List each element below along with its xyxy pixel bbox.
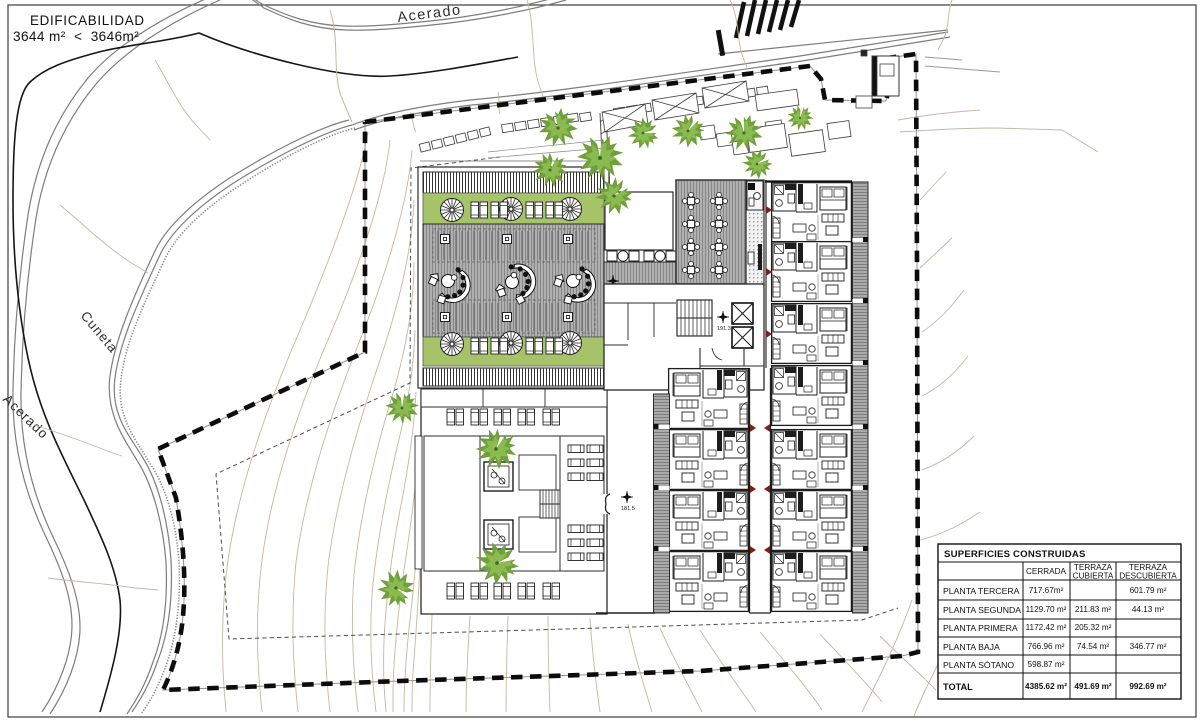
svg-text:3644 m² < 3646m²: 3644 m² < 3646m² bbox=[13, 29, 139, 44]
svg-text:1172.42 m²: 1172.42 m² bbox=[1026, 623, 1067, 632]
svg-text:205.32 m²: 205.32 m² bbox=[1075, 623, 1112, 632]
svg-text:346.77 m²: 346.77 m² bbox=[1130, 642, 1167, 651]
svg-text:PLANTA PRIMERA: PLANTA PRIMERA bbox=[943, 623, 1018, 633]
svg-text:PLANTA SEGUNDA: PLANTA SEGUNDA bbox=[943, 605, 1021, 615]
svg-text:DESCUBIERTA: DESCUBIERTA bbox=[1119, 572, 1177, 581]
svg-text:TOTAL: TOTAL bbox=[943, 682, 973, 692]
svg-text:598.87 m²: 598.87 m² bbox=[1028, 660, 1065, 669]
svg-text:717.67m²: 717.67m² bbox=[1029, 586, 1064, 595]
svg-text:74.54 m²: 74.54 m² bbox=[1077, 642, 1110, 651]
svg-text:992.69 m²: 992.69 m² bbox=[1129, 682, 1167, 691]
svg-text:766.96 m²: 766.96 m² bbox=[1028, 642, 1065, 651]
svg-text:CERRADA: CERRADA bbox=[1026, 567, 1067, 576]
svg-text:211.83 m²: 211.83 m² bbox=[1075, 605, 1112, 614]
svg-text:CUBIERTA: CUBIERTA bbox=[1073, 572, 1114, 581]
svg-text:4385.62 m²: 4385.62 m² bbox=[1025, 682, 1067, 691]
svg-text:491.69 m²: 491.69 m² bbox=[1074, 682, 1112, 691]
svg-text:EDIFICABILIDAD: EDIFICABILIDAD bbox=[30, 13, 145, 28]
svg-text:PLANTA BAJA: PLANTA BAJA bbox=[943, 642, 1000, 652]
svg-text:191.3: 191.3 bbox=[717, 326, 731, 332]
svg-text:601.79 m²: 601.79 m² bbox=[1130, 586, 1167, 595]
svg-text:PLANTA SÓTANO: PLANTA SÓTANO bbox=[943, 660, 1014, 670]
svg-text:181.5: 181.5 bbox=[621, 506, 635, 512]
svg-text:SUPERFICIES CONSTRUIDAS: SUPERFICIES CONSTRUIDAS bbox=[944, 549, 1086, 560]
svg-text:1129.70 m²: 1129.70 m² bbox=[1026, 605, 1067, 614]
svg-text:44.13 m²: 44.13 m² bbox=[1132, 605, 1165, 614]
svg-text:PLANTA TERCERA: PLANTA TERCERA bbox=[943, 586, 1020, 596]
